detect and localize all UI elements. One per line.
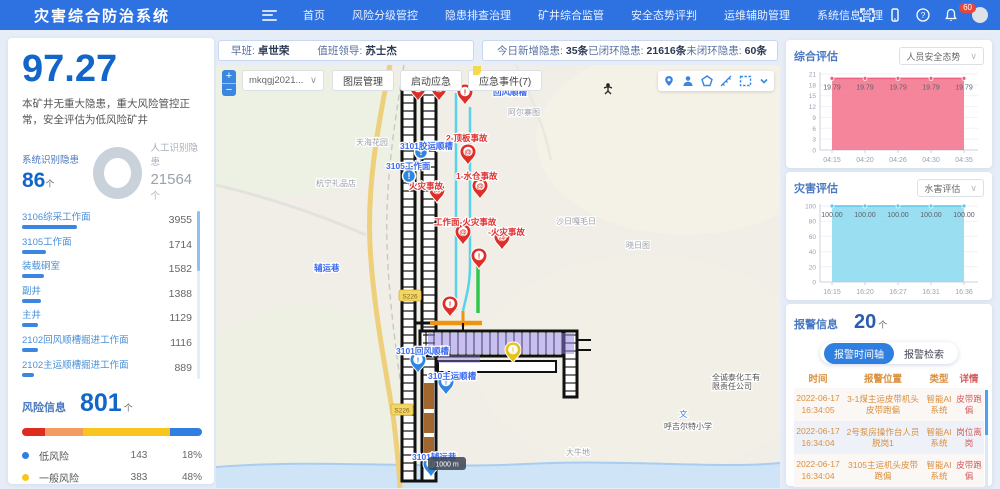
main-menu: 首页风险分级管控隐患排查治理矿井综合监管安全态势评判运维辅助管理系统信息管理 bbox=[303, 7, 910, 23]
alarm-tab-1[interactable]: 报警检索 bbox=[894, 343, 954, 364]
personnel-safety-area-chart: 03691215182119.7904:1519.7904:2019.7904:… bbox=[794, 65, 984, 165]
svg-text:100.00: 100.00 bbox=[920, 212, 942, 219]
map-label: 呼吉尔特小学 bbox=[664, 421, 712, 431]
svg-text:20: 20 bbox=[809, 264, 817, 271]
zoom-out-button: − bbox=[222, 83, 236, 96]
map-marker-red-pin[interactable]: @ bbox=[455, 224, 471, 245]
risk-stacked-bar bbox=[22, 428, 202, 436]
svg-text:16:36: 16:36 bbox=[955, 289, 973, 296]
safety-score-description: 本矿井无重大隐患，重大风险管控正常，安全评估为低风险矿井 bbox=[22, 96, 202, 129]
map-marker-red-pin[interactable]: ! bbox=[442, 296, 458, 317]
polygon-icon[interactable] bbox=[701, 75, 713, 87]
svg-text:15: 15 bbox=[809, 93, 817, 100]
map-label: -火灾事故 bbox=[488, 227, 525, 237]
list-scrollbar[interactable] bbox=[197, 211, 200, 379]
svg-text:!: ! bbox=[449, 299, 452, 308]
risk-legend: 低风险14318%一般风险38348%较大风险16921% bbox=[22, 444, 202, 484]
menu-item-5[interactable]: 运维辅助管理 bbox=[724, 7, 790, 23]
select-area-icon[interactable] bbox=[739, 75, 752, 87]
svg-text:04:15: 04:15 bbox=[823, 157, 841, 164]
map-layer-select[interactable]: mkqgj2021...∨ bbox=[242, 70, 324, 91]
shift-info-box: 早班: 卓世荣 值班领导: 苏士杰 bbox=[218, 40, 474, 61]
svg-text:0: 0 bbox=[812, 280, 816, 287]
person-icon[interactable] bbox=[682, 75, 694, 87]
svg-text:04:20: 04:20 bbox=[856, 157, 874, 164]
location-danger-item[interactable]: 主井1129 bbox=[22, 307, 192, 332]
map-scale: 1000 m bbox=[428, 457, 466, 470]
alarm-table-scrollbar[interactable] bbox=[985, 390, 988, 489]
map-label: 阿尔寨图 bbox=[508, 107, 540, 117]
menu-item-1[interactable]: 风险分级管控 bbox=[352, 7, 418, 23]
zoom-in-button: + bbox=[222, 70, 236, 83]
map-label: 3101胶运顺槽 bbox=[400, 141, 453, 151]
map-label: 晓日图 bbox=[626, 240, 650, 250]
notification-badge: 60 bbox=[959, 3, 976, 13]
svg-text:19.79: 19.79 bbox=[955, 84, 973, 91]
svg-text:S226: S226 bbox=[402, 294, 418, 301]
svg-text:9: 9 bbox=[812, 115, 816, 122]
leader-name: 苏士杰 bbox=[365, 43, 397, 58]
alarm-tabs: 报警时间轴报警检索 bbox=[820, 342, 958, 364]
svg-text:!: ! bbox=[417, 355, 420, 364]
risk-segment bbox=[22, 428, 45, 436]
road-badge: S226 bbox=[391, 404, 413, 415]
map-label: 3101回风顺槽 bbox=[396, 346, 449, 356]
map-label: 文 bbox=[679, 409, 688, 419]
panel-title: 灾害评估 bbox=[794, 180, 838, 196]
map-label: 1-水仓事故 bbox=[456, 171, 498, 181]
map-label: 限责任公司 bbox=[712, 381, 752, 391]
alarm-tab-0[interactable]: 报警时间轴 bbox=[824, 343, 894, 364]
map-label: 全诚泰化工有 bbox=[712, 372, 760, 382]
assessment-type-select[interactable]: 人员安全态势∨ bbox=[899, 47, 984, 65]
svg-text:!: ! bbox=[478, 251, 481, 260]
svg-text:16:27: 16:27 bbox=[889, 289, 907, 296]
map-zoom-control[interactable]: +− bbox=[222, 70, 236, 96]
svg-text:100: 100 bbox=[805, 204, 816, 211]
svg-text:19.79: 19.79 bbox=[823, 84, 841, 91]
map-label: 杭宁礼品店 bbox=[316, 178, 356, 188]
start-emergency-button[interactable]: 启动应急 bbox=[400, 70, 462, 91]
svg-text:04:30: 04:30 bbox=[922, 157, 940, 164]
danger-stat: 今日新增隐患:35条 bbox=[497, 43, 588, 58]
app-title: 灾害综合防治系统 bbox=[34, 5, 170, 26]
menu-item-2[interactable]: 隐患排查治理 bbox=[445, 7, 511, 23]
risk-info-label: 风险信息 bbox=[22, 399, 66, 415]
svg-text:04:26: 04:26 bbox=[889, 157, 907, 164]
svg-text:100.00: 100.00 bbox=[887, 212, 909, 219]
system-identified-count: 86个 bbox=[22, 169, 85, 193]
panel-title: 综合评估 bbox=[794, 48, 838, 64]
svg-text:!: ! bbox=[464, 87, 467, 96]
svg-text:16:20: 16:20 bbox=[856, 289, 874, 296]
risk-segment bbox=[45, 428, 83, 436]
location-danger-item[interactable]: 3105工作面1714 bbox=[22, 234, 192, 259]
disaster-type-select[interactable]: 水害评估∨ bbox=[917, 179, 984, 197]
map-label: 火灾事故 bbox=[409, 181, 444, 191]
svg-text:!: ! bbox=[512, 345, 515, 354]
map-label: 沙日嘎毛日 bbox=[556, 216, 596, 226]
map-label: 大牛地 bbox=[566, 447, 590, 457]
svg-text:1000 m: 1000 m bbox=[435, 462, 459, 469]
road-badge: S226 bbox=[399, 290, 421, 301]
shift-name: 卓世荣 bbox=[258, 43, 290, 58]
location-danger-item[interactable]: 副井1388 bbox=[22, 283, 192, 308]
svg-text:16:31: 16:31 bbox=[922, 289, 940, 296]
shift-label: 早班: bbox=[231, 43, 255, 58]
map-marker-red-pin[interactable]: ! bbox=[471, 248, 487, 269]
safety-score-panel: 97.27 本矿井无重大隐患，重大风险管控正常，安全评估为低风险矿井 系统识别隐… bbox=[8, 38, 214, 484]
map-label: 辅运巷 bbox=[314, 263, 340, 273]
svg-text:80: 80 bbox=[809, 219, 817, 226]
svg-text:S226: S226 bbox=[394, 408, 410, 415]
alarm-table-header: 时间报警位置类型详情 bbox=[794, 372, 984, 388]
alarm-count: 20 bbox=[854, 311, 876, 334]
alarm-title: 报警信息 bbox=[794, 316, 838, 332]
notifications-bell-icon[interactable] bbox=[944, 8, 958, 22]
svg-text:6: 6 bbox=[812, 126, 816, 133]
topbar: 灾害综合防治系统 首页风险分级管控隐患排查治理矿井综合监管安全态势评判运维辅助管… bbox=[0, 0, 1000, 30]
location-danger-item[interactable]: 装载硐室1582 bbox=[22, 258, 192, 283]
location-danger-item[interactable]: 3106综采工作面3955 bbox=[22, 209, 192, 234]
risk-legend-row: 一般风险38348% bbox=[22, 466, 202, 484]
hidden-danger-donut-chart bbox=[93, 147, 142, 199]
mine-map[interactable]: S226S226!@!@@@@@!!!!!!!!回风顺槽2-顶板事故1-水仓事故… bbox=[216, 65, 780, 488]
system-identified-label: 系统识别隐患 bbox=[22, 152, 85, 166]
location-danger-list: 3106综采工作面39553105工作面1714装载硐室1582副井1388主井… bbox=[22, 209, 202, 381]
svg-text:21: 21 bbox=[809, 72, 817, 79]
map-canvas[interactable]: S226S226!@!@@@@@!!!!!!!!回风顺槽2-顶板事故1-水仓事故… bbox=[216, 65, 780, 488]
svg-text:100.00: 100.00 bbox=[953, 212, 975, 219]
water-hazard-area-chart: 020406080100100.0016:15100.0016:20100.00… bbox=[794, 197, 984, 297]
svg-text:18: 18 bbox=[809, 82, 817, 89]
alarm-table: 时间报警位置类型详情2022-06-1716:34:053-1煤主运皮带机头皮带… bbox=[794, 372, 984, 487]
manual-identified-block: 人工识别隐患 21564 个 bbox=[150, 142, 202, 203]
locate-icon[interactable] bbox=[663, 75, 675, 87]
danger-stat: 未闭环隐患:60条 bbox=[686, 43, 767, 58]
svg-text:@: @ bbox=[476, 181, 483, 190]
svg-text:@: @ bbox=[464, 147, 471, 156]
safety-score: 97.27 bbox=[22, 48, 202, 92]
svg-text:19.79: 19.79 bbox=[922, 84, 940, 91]
danger-stats-box: 今日新增隐患:35条已闭环隐患:21616条未闭环隐患:60条 bbox=[482, 40, 778, 61]
menu-item-4[interactable]: 安全态势评判 bbox=[631, 7, 697, 23]
svg-text:?: ? bbox=[921, 10, 926, 20]
note-icon bbox=[473, 66, 481, 75]
svg-text:0: 0 bbox=[812, 148, 816, 155]
manual-identified-count: 21564 bbox=[150, 169, 202, 190]
menu-item-3[interactable]: 矿井综合监管 bbox=[538, 7, 604, 23]
risk-segment bbox=[170, 428, 202, 436]
device-icon[interactable] bbox=[888, 8, 902, 22]
location-danger-item[interactable]: 2102主运顺槽掘进工作面889 bbox=[22, 357, 192, 382]
svg-text:100.00: 100.00 bbox=[854, 212, 876, 219]
map-toolbar bbox=[658, 71, 774, 91]
menu-item-0[interactable]: 首页 bbox=[303, 7, 325, 23]
map-marker-red-pin[interactable]: @ bbox=[472, 178, 488, 199]
risk-legend-row: 低风险14318% bbox=[22, 444, 202, 466]
risk-count: 801 bbox=[80, 391, 122, 416]
help-icon[interactable]: ? bbox=[916, 8, 930, 22]
chevron-down-icon[interactable] bbox=[759, 76, 769, 86]
svg-text:60: 60 bbox=[809, 234, 817, 241]
svg-text:04:35: 04:35 bbox=[955, 157, 973, 164]
svg-text:19.79: 19.79 bbox=[889, 84, 907, 91]
svg-text:40: 40 bbox=[809, 249, 817, 256]
alarm-info-panel: 报警信息 20 个 报警时间轴报警检索 时间报警位置类型详情2022-06-17… bbox=[786, 304, 992, 486]
svg-text:3: 3 bbox=[812, 137, 816, 144]
fullscreen-icon[interactable] bbox=[860, 8, 874, 22]
risk-segment bbox=[83, 428, 169, 436]
map-label: 310主运顺槽 bbox=[428, 371, 477, 381]
map-label: 3105工作面 bbox=[386, 161, 431, 171]
disaster-assessment-panel: 灾害评估 水害评估∨ 020406080100100.0016:15100.00… bbox=[786, 172, 992, 300]
map-label: 天海花园 bbox=[356, 137, 388, 147]
svg-text:12: 12 bbox=[809, 104, 817, 111]
alarm-row[interactable]: 2022-06-1716:34:042号泵房操作台人员脱岗1智能AI系统岗位离岗 bbox=[794, 421, 984, 454]
layer-manage-button[interactable]: 图层管理 bbox=[332, 70, 394, 91]
svg-text:16:15: 16:15 bbox=[823, 289, 841, 296]
svg-text:19.79: 19.79 bbox=[856, 84, 874, 91]
alarm-row[interactable]: 2022-06-1716:34:053-1煤主运皮带机头皮带跑偏智能AI系统皮带… bbox=[794, 388, 984, 421]
menu-toggle-icon[interactable] bbox=[262, 10, 277, 21]
alarm-row[interactable]: 2022-06-1716:34:043105主运机头皮带跑偏智能AI系统皮带跑偏 bbox=[794, 454, 984, 487]
map-label: 工作面-火灾事故 bbox=[434, 217, 497, 227]
measure-icon[interactable] bbox=[720, 75, 732, 87]
location-danger-item[interactable]: 2102回风顺槽掘进工作面1116 bbox=[22, 332, 192, 357]
danger-stat: 已闭环隐患:21616条 bbox=[588, 43, 686, 58]
leader-label: 值班领导: bbox=[317, 43, 362, 58]
map-marker-red-pin[interactable]: @ bbox=[460, 144, 476, 165]
svg-text:@: @ bbox=[459, 227, 466, 236]
comprehensive-assessment-panel: 综合评估 人员安全态势∨ 03691215182119.7904:1519.79… bbox=[786, 40, 992, 168]
svg-text:100.00: 100.00 bbox=[821, 212, 843, 219]
svg-text:!: ! bbox=[408, 171, 411, 181]
